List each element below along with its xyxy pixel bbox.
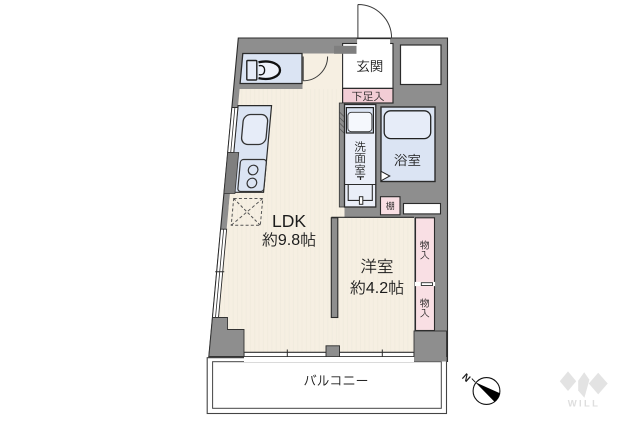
svg-text:LDK: LDK [272,211,306,231]
svg-text:9.8: 9.8 [278,232,300,249]
svg-text:WILL: WILL [568,399,600,410]
svg-text:4.2: 4.2 [366,280,388,297]
